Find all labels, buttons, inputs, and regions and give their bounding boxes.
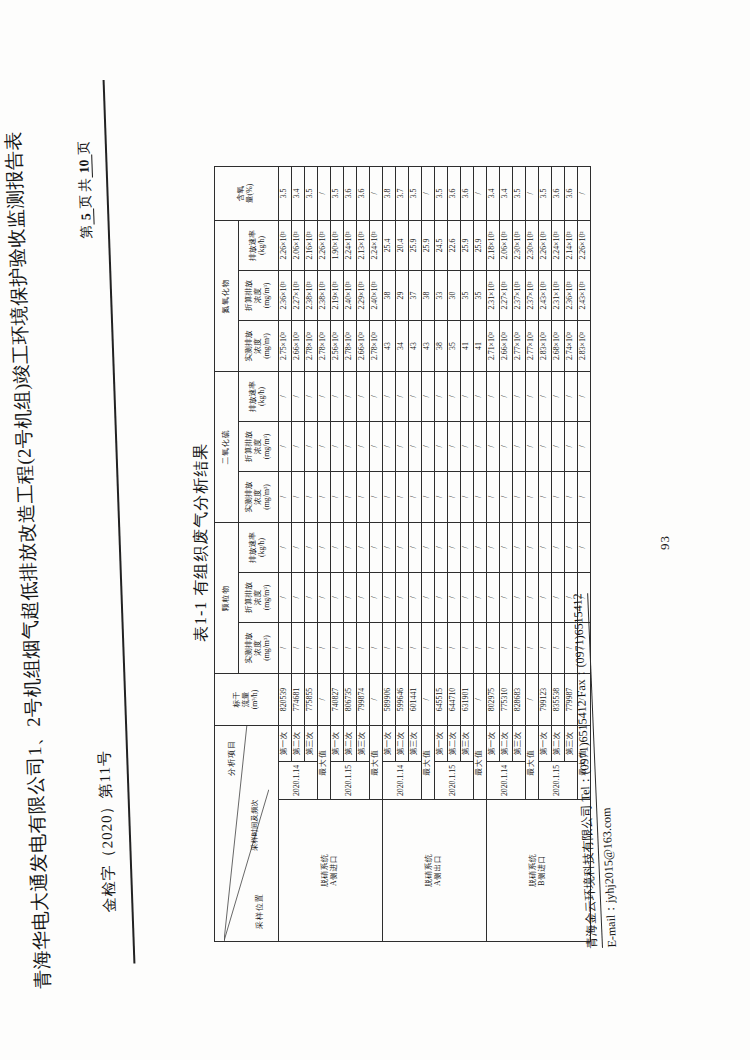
value-cell: / [395, 522, 408, 572]
value-cell: / [330, 572, 343, 622]
value-cell: / [278, 471, 291, 522]
location-cell: 脱硝系统 B侧进口 [486, 800, 590, 942]
sheet-page-number: 93 [657, 535, 673, 550]
value-cell: / [473, 673, 486, 725]
value-cell: / [434, 522, 447, 572]
time-cell: 第一次 [382, 725, 395, 761]
location-cell: 脱硝系统 A侧进口 [278, 800, 382, 942]
value-cell: 2.16×10² [304, 220, 317, 270]
value-cell: / [447, 522, 460, 572]
subheader-particulate-converted: 折算排放 浓度 (mg/m³) [239, 572, 279, 622]
max-label-cell: 最大值 [421, 725, 434, 799]
page-indicator: 第5页 共10页 [75, 141, 96, 239]
value-cell: / [473, 421, 486, 471]
value-cell: / [395, 421, 408, 471]
value-cell: / [434, 371, 447, 421]
col-header-oxygen: 含氧 量(%) [215, 166, 279, 220]
value-cell: / [525, 471, 538, 522]
value-cell: / [577, 421, 590, 471]
corner-label-sampling-location: 采样位置 [255, 893, 264, 929]
value-cell: / [499, 371, 512, 421]
value-cell: / [408, 622, 421, 673]
value-cell: / [369, 572, 382, 622]
value-cell: / [382, 572, 395, 622]
value-cell: 2.71×10² [486, 320, 499, 371]
max-label-cell: 最大值 [317, 725, 330, 799]
value-cell: 24.5 [434, 220, 447, 270]
value-cell: 2.06×10² [291, 220, 304, 270]
value-cell: 2.83×10² [538, 320, 551, 371]
value-cell: 2.78×10² [304, 320, 317, 371]
value-cell: 38 [421, 270, 434, 320]
value-cell: 43 [382, 320, 395, 371]
value-cell: / [473, 572, 486, 622]
value-cell: / [395, 371, 408, 421]
value-cell: / [395, 622, 408, 673]
value-cell: 2.77×10² [525, 320, 538, 371]
value-cell: / [291, 522, 304, 572]
value-cell: / [317, 371, 330, 421]
value-cell: / [486, 622, 499, 673]
value-cell: 43 [408, 320, 421, 371]
date-cell: 2020.1.15 [434, 762, 473, 800]
document-number: 金检字（2020）第11号 [95, 750, 120, 913]
value-cell: 37 [408, 270, 421, 320]
value-cell: 3.6 [460, 166, 473, 220]
value-cell: / [525, 572, 538, 622]
value-cell: / [330, 371, 343, 421]
value-cell: / [551, 471, 564, 522]
value-cell: 2.56×10² [330, 320, 343, 371]
value-cell: 2.31×10² [486, 270, 499, 320]
value-cell: / [421, 522, 434, 572]
value-cell: 25.4 [382, 220, 395, 270]
value-cell: 799123 [538, 673, 551, 725]
value-cell: 3.8 [382, 166, 395, 220]
value-cell: 2.66×10² [499, 320, 512, 371]
value-cell: / [382, 522, 395, 572]
value-cell: 34 [395, 320, 408, 371]
value-cell: 2.74×10² [564, 320, 577, 371]
value-cell: 806735 [343, 673, 356, 725]
value-cell: 3.4 [486, 166, 499, 220]
value-cell: / [421, 572, 434, 622]
value-cell: 2.43×10² [577, 270, 590, 320]
value-cell: / [538, 371, 551, 421]
value-cell: / [356, 622, 369, 673]
value-cell: 2.68×10² [551, 320, 564, 371]
value-cell: 2.26×10² [538, 220, 551, 270]
value-cell: / [395, 572, 408, 622]
value-cell: 2.78×10² [369, 320, 382, 371]
value-cell: / [408, 471, 421, 522]
value-cell: 775855 [304, 673, 317, 725]
time-cell: 第一次 [538, 725, 551, 761]
value-cell: / [434, 622, 447, 673]
value-cell: / [551, 371, 564, 421]
value-cell: / [330, 622, 343, 673]
value-cell: 2.38×10² [304, 270, 317, 320]
page-total: 10 [76, 154, 93, 178]
value-cell: / [421, 673, 434, 725]
value-cell: / [512, 371, 525, 421]
subheader-so2-measured: 实测排放 浓度 (mg/m³) [239, 471, 279, 522]
value-cell: / [317, 622, 330, 673]
value-cell: 631901 [460, 673, 473, 725]
time-cell: 第二次 [499, 725, 512, 761]
value-cell: / [356, 471, 369, 522]
value-cell: / [356, 572, 369, 622]
date-cell: 2020.1.14 [486, 762, 525, 800]
value-cell: / [538, 522, 551, 572]
value-cell: / [304, 572, 317, 622]
value-cell: / [473, 166, 486, 220]
value-cell: 20.4 [395, 220, 408, 270]
value-cell: 2.24×10² [551, 220, 564, 270]
value-cell: / [421, 421, 434, 471]
value-cell: / [486, 371, 499, 421]
value-cell: 2.75×10² [278, 320, 291, 371]
value-cell: 25.9 [421, 220, 434, 270]
subheader-so2-rate: 排放速率 (kg/h) [239, 371, 279, 421]
value-cell: / [369, 421, 382, 471]
value-cell: / [304, 622, 317, 673]
subheader-nox-measured: 实测排放 浓度 (mg/m³) [239, 320, 279, 371]
value-cell: / [551, 572, 564, 622]
value-cell: / [525, 371, 538, 421]
value-cell: 775310 [499, 673, 512, 725]
value-cell: / [382, 371, 395, 421]
value-cell: / [421, 471, 434, 522]
value-cell: 43 [421, 320, 434, 371]
value-cell: 41 [473, 320, 486, 371]
value-cell: / [343, 421, 356, 471]
value-cell: / [447, 622, 460, 673]
value-cell: 22.6 [447, 220, 460, 270]
value-cell: / [304, 471, 317, 522]
value-cell: 2.06×10² [499, 220, 512, 270]
value-cell: 2.78×10² [343, 320, 356, 371]
value-cell: / [525, 622, 538, 673]
value-cell: / [564, 371, 577, 421]
value-cell: 35 [473, 270, 486, 320]
max-label-cell: 最大值 [525, 725, 538, 799]
value-cell: / [577, 471, 590, 522]
value-cell: 802975 [486, 673, 499, 725]
value-cell: 38 [434, 320, 447, 371]
value-cell: 3.5 [304, 166, 317, 220]
value-cell: / [421, 166, 434, 220]
value-cell: 3.5 [330, 166, 343, 220]
time-cell: 第二次 [551, 725, 564, 761]
value-cell: / [499, 622, 512, 673]
corner-cell: 分析项目 采样时间及频次 采样位置 [215, 725, 279, 941]
subheader-particulate-rate: 排放速率 (kg/h) [239, 522, 279, 572]
value-cell: / [460, 572, 473, 622]
value-cell: 3.5 [408, 166, 421, 220]
value-cell: / [317, 421, 330, 471]
value-cell: / [369, 522, 382, 572]
table-caption: 表1-1 有组织废气分析结果 [191, 443, 212, 642]
value-cell: / [291, 471, 304, 522]
col-header-particulate: 颗粒物 [215, 522, 239, 673]
value-cell: 2.29×10² [356, 270, 369, 320]
table-row: 脱硝系统 B侧进口2020.1.14第一次802975//////2.71×10… [486, 166, 499, 941]
value-cell: / [408, 371, 421, 421]
value-cell: / [473, 522, 486, 572]
value-cell: 2.83×10² [577, 320, 590, 371]
value-cell: / [434, 572, 447, 622]
time-cell: 第二次 [447, 725, 460, 761]
value-cell: 30 [447, 270, 460, 320]
value-cell: / [460, 622, 473, 673]
value-cell: 2.27×10² [291, 270, 304, 320]
value-cell: / [525, 166, 538, 220]
value-cell: 2.26×10² [577, 220, 590, 270]
value-cell: 601441 [408, 673, 421, 725]
value-cell: / [551, 421, 564, 471]
value-cell: / [330, 522, 343, 572]
value-cell: / [460, 522, 473, 572]
value-cell: / [551, 522, 564, 572]
date-cell: 2020.1.14 [382, 762, 421, 800]
value-cell: / [369, 166, 382, 220]
value-cell: 2.38×10² [317, 270, 330, 320]
value-cell: / [291, 421, 304, 471]
value-cell: / [486, 471, 499, 522]
value-cell: / [486, 572, 499, 622]
page-mid: 页 共 [77, 178, 93, 209]
value-cell: 35 [460, 270, 473, 320]
value-cell: / [317, 166, 330, 220]
value-cell: / [525, 673, 538, 725]
time-cell: 第二次 [343, 725, 356, 761]
value-cell: / [473, 471, 486, 522]
value-cell: 38 [382, 270, 395, 320]
value-cell: / [356, 371, 369, 421]
value-cell: 33 [434, 270, 447, 320]
value-cell: / [512, 622, 525, 673]
value-cell: / [382, 421, 395, 471]
date-cell: 2020.1.14 [278, 762, 317, 800]
value-cell: / [499, 572, 512, 622]
page-suffix: 页 [76, 141, 91, 155]
value-cell: 3.5 [512, 166, 525, 220]
value-cell: 644710 [447, 673, 460, 725]
scanned-document-page: 青海华电大通发电有限公司1、2号机组烟气超低排放改造工程(2号机组)竣工环境保护… [0, 0, 750, 1060]
value-cell: / [330, 471, 343, 522]
value-cell: / [317, 522, 330, 572]
table-row: 脱硝系统 A侧进口2020.1.14第一次820539//////2.75×10… [278, 166, 291, 941]
value-cell: 3.5 [538, 166, 551, 220]
value-cell: / [512, 522, 525, 572]
value-cell: 2.43×10² [538, 270, 551, 320]
document-title: 青海华电大通发电有限公司1、2号机组烟气超低排放改造工程(2号机组)竣工环境保护… [0, 59, 56, 989]
value-cell: / [369, 622, 382, 673]
value-cell: 2.24×10² [369, 220, 382, 270]
location-cell: 脱硝系统 A侧出口 [382, 800, 486, 942]
value-cell: / [343, 371, 356, 421]
value-cell: / [447, 421, 460, 471]
value-cell: / [512, 572, 525, 622]
value-cell: / [577, 522, 590, 572]
value-cell: 2.26×10² [317, 220, 330, 270]
value-cell: / [343, 622, 356, 673]
value-cell: 2.37×10² [512, 270, 525, 320]
value-cell: / [460, 371, 473, 421]
value-cell: / [291, 572, 304, 622]
value-cell: 3.6 [447, 166, 460, 220]
value-cell: / [408, 572, 421, 622]
value-cell: 35 [447, 320, 460, 371]
value-cell: / [278, 622, 291, 673]
value-cell: / [525, 522, 538, 572]
table-row: 脱硝系统 A侧出口2020.1.14第一次589906//////433825.… [382, 166, 395, 941]
value-cell: / [577, 371, 590, 421]
value-cell: / [460, 421, 473, 471]
value-cell: / [317, 572, 330, 622]
value-cell: 799874 [356, 673, 369, 725]
value-cell: / [421, 371, 434, 421]
value-cell: / [291, 622, 304, 673]
subheader-nox-converted: 折算排放 浓度 (mg/m³) [239, 270, 279, 320]
value-cell: / [408, 522, 421, 572]
value-cell: 2.40×10² [369, 270, 382, 320]
value-cell: / [369, 673, 382, 725]
value-cell: / [564, 522, 577, 572]
value-cell: / [278, 371, 291, 421]
value-cell: 1.90×10² [330, 220, 343, 270]
value-cell: 2.18×10² [486, 220, 499, 270]
subheader-particulate-measured: 实测排放 浓度 (mg/m³) [239, 622, 279, 673]
value-cell: / [304, 371, 317, 421]
value-cell: 3.6 [564, 166, 577, 220]
value-cell: / [473, 622, 486, 673]
value-cell: 835538 [551, 673, 564, 725]
value-cell: / [369, 371, 382, 421]
time-cell: 第三次 [408, 725, 421, 761]
value-cell: 740827 [330, 673, 343, 725]
value-cell: 2.36×10² [564, 270, 577, 320]
value-cell: 2.40×10² [343, 270, 356, 320]
value-cell: / [343, 572, 356, 622]
value-cell: 3.5 [434, 166, 447, 220]
value-cell: 774681 [291, 673, 304, 725]
value-cell: / [447, 471, 460, 522]
value-cell: 3.7 [395, 166, 408, 220]
value-cell: 2.19×10² [330, 270, 343, 320]
time-cell: 第三次 [356, 725, 369, 761]
value-cell: 2.27×10² [499, 270, 512, 320]
col-header-so2: 二氧化硫 [215, 371, 239, 522]
page-prefix: 第 [79, 225, 94, 239]
value-cell: / [460, 471, 473, 522]
value-cell: 2.14×10² [564, 220, 577, 270]
value-cell: 2.36×10² [278, 270, 291, 320]
value-cell: / [434, 471, 447, 522]
value-cell: 3.6 [356, 166, 369, 220]
value-cell: 3.6 [343, 166, 356, 220]
value-cell: / [356, 421, 369, 471]
value-cell: / [343, 522, 356, 572]
time-cell: 第一次 [278, 725, 291, 761]
value-cell: 2.66×10² [356, 320, 369, 371]
value-cell: 29 [395, 270, 408, 320]
value-cell: / [577, 166, 590, 220]
rotated-landscape-sheet: 青海华电大通发电有限公司1、2号机组烟气超低排放改造工程(2号机组)竣工环境保护… [0, 0, 750, 1060]
value-cell: 25.9 [473, 220, 486, 270]
value-cell: 645515 [434, 673, 447, 725]
value-cell: 41 [460, 320, 473, 371]
value-cell: / [278, 572, 291, 622]
value-cell: 828683 [512, 673, 525, 725]
time-cell: 第一次 [330, 725, 343, 761]
time-cell: 第二次 [395, 725, 408, 761]
col-header-flow: 标干 流量 (m³/h) [215, 673, 279, 725]
value-cell: / [551, 622, 564, 673]
value-cell: / [304, 421, 317, 471]
value-cell: / [278, 421, 291, 471]
value-cell: 3.5 [278, 166, 291, 220]
value-cell: 2.26×10² [278, 220, 291, 270]
time-cell: 第三次 [460, 725, 473, 761]
value-cell: 820539 [278, 673, 291, 725]
table-body: 脱硝系统 A侧进口2020.1.14第一次820539//////2.75×10… [278, 166, 590, 941]
value-cell: / [317, 673, 330, 725]
value-cell: / [291, 371, 304, 421]
value-cell: / [356, 522, 369, 572]
value-cell: / [538, 572, 551, 622]
value-cell: / [499, 522, 512, 572]
value-cell: 3.4 [291, 166, 304, 220]
value-cell: 2.24×10² [343, 220, 356, 270]
max-label-cell: 最大值 [473, 725, 486, 799]
value-cell: 3.4 [499, 166, 512, 220]
time-cell: 第一次 [486, 725, 499, 761]
corner-label-analysis-item: 分析项目 [227, 740, 236, 776]
value-cell: 2.78×10² [317, 320, 330, 371]
page-current: 5 [78, 208, 95, 225]
value-cell: / [369, 471, 382, 522]
date-cell: 2020.1.15 [538, 762, 577, 800]
value-cell: 2.30×10² [525, 220, 538, 270]
value-cell: 25.9 [460, 220, 473, 270]
value-cell: / [525, 421, 538, 471]
value-cell: 589906 [382, 673, 395, 725]
value-cell: / [317, 471, 330, 522]
value-cell: / [278, 522, 291, 572]
value-cell: 2.77×10² [512, 320, 525, 371]
value-cell: / [421, 622, 434, 673]
time-cell: 第三次 [304, 725, 317, 761]
value-cell: / [499, 471, 512, 522]
value-cell: / [512, 421, 525, 471]
subheader-nox-rate: 排放速率 (kg/h) [239, 220, 279, 270]
value-cell: / [486, 421, 499, 471]
value-cell: / [343, 471, 356, 522]
value-cell: / [434, 421, 447, 471]
value-cell: 25.9 [408, 220, 421, 270]
value-cell: / [408, 421, 421, 471]
value-cell: 2.13×10² [356, 220, 369, 270]
time-cell: 第三次 [512, 725, 525, 761]
value-cell: / [512, 471, 525, 522]
value-cell: / [304, 522, 317, 572]
value-cell: / [473, 371, 486, 421]
value-cell: / [538, 471, 551, 522]
value-cell: / [395, 471, 408, 522]
value-cell: 3.6 [551, 166, 564, 220]
